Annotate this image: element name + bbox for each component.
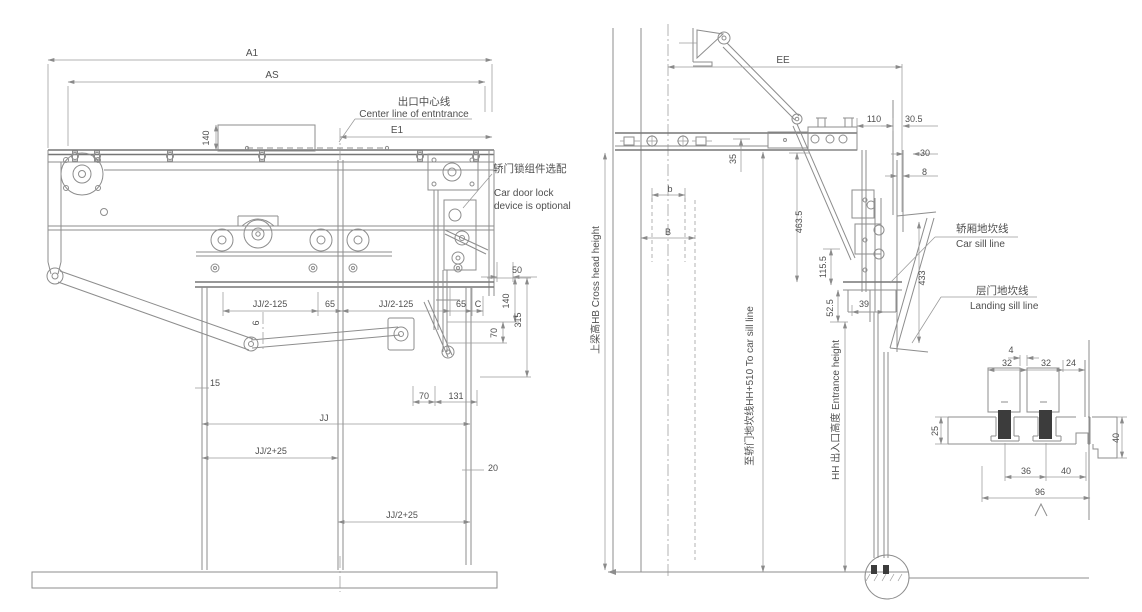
door-hanger-rollers — [211, 216, 369, 251]
dim-e1: E1 — [391, 125, 404, 136]
ground-arrow — [608, 569, 616, 575]
door-drive-arm — [47, 268, 414, 352]
dim-c: C — [475, 299, 482, 309]
label-entrance-height: HH 出入口高度 Entrance height — [829, 340, 842, 480]
dim-25: 25 — [930, 426, 940, 436]
detail-pointer-arrow — [1035, 504, 1047, 516]
dim-433: 433 — [917, 270, 927, 285]
sill-profile — [948, 417, 1117, 458]
dim-40-bottom: 40 — [1061, 466, 1071, 476]
label-landing-sill-zh: 层门地坎线 — [976, 284, 1029, 297]
dim-20: 20 — [488, 463, 498, 473]
side-operator-mechanism — [793, 124, 884, 312]
side-dimensions — [605, 64, 1037, 572]
dim-32-left: 32 — [1002, 358, 1012, 368]
label-crosshead-height: 上梁高HB Cross head height — [589, 226, 602, 354]
label-door-lock-zh: 轿门锁组件选配 — [493, 162, 567, 175]
label-car-sill-en: Car sill line — [956, 239, 1005, 250]
dim-ee: EE — [776, 55, 790, 66]
front-view: A1 AS E1 出口中心线 Center line of entntrance… — [32, 48, 571, 592]
dim-6: 6 — [251, 320, 261, 325]
side-labels: EE 110 30.5 30 8 35 463.5 115.5 52.5 39 … — [589, 55, 1039, 480]
dim-35: 35 — [728, 154, 738, 164]
label-landing-sill-en: Landing sill line — [970, 301, 1039, 312]
label-door-lock-en2: device is optional — [494, 201, 571, 212]
dim-24: 24 — [1066, 358, 1076, 368]
guide-shoe-right — [1039, 410, 1052, 439]
dim-8: 8 — [922, 167, 927, 177]
dim-96: 96 — [1035, 487, 1045, 497]
dim-131: 131 — [448, 391, 463, 401]
dim-4: 4 — [1008, 345, 1013, 355]
floor-base — [32, 572, 497, 588]
side-view: EE 110 30.5 30 8 35 463.5 115.5 52.5 39 … — [589, 24, 1089, 599]
dim-b-cap: B — [665, 227, 671, 237]
dim-36: 36 — [1021, 466, 1031, 476]
dim-jj2-25-left: JJ/2+25 — [255, 446, 287, 456]
dim-32-right: 32 — [1041, 358, 1051, 368]
section-dimensions — [935, 355, 1127, 502]
dim-40-right: 40 — [1111, 433, 1121, 443]
dim-jj2-125-right: JJ/2-125 — [379, 299, 414, 309]
dim-65-right: 65 — [456, 299, 466, 309]
dim-315: 315 — [513, 312, 523, 327]
dim-70-vert: 70 — [489, 328, 499, 338]
dim-65-left: 65 — [325, 299, 335, 309]
dim-110: 110 — [867, 114, 881, 124]
sill-detail-circle — [865, 555, 909, 599]
dim-50: 50 — [512, 265, 522, 275]
label-entrance-center-zh: 出口中心线 — [398, 95, 451, 108]
label-car-sill-zh: 轿厢地坎线 — [956, 222, 1009, 235]
sill-section-detail: 4 32 32 24 25 40 36 40 96 — [930, 345, 1127, 516]
guide-shoe-left — [998, 410, 1011, 439]
section-labels: 4 32 32 24 25 40 36 40 96 — [930, 345, 1121, 497]
elevator-door-operator-drawing: A1 AS E1 出口中心线 Center line of entntrance… — [0, 0, 1142, 612]
dim-b-small: b — [667, 184, 672, 194]
label-to-car-sill: 至轿门地坎线HH+510 To car sill line — [743, 306, 756, 466]
label-door-lock-en1: Car door lock — [494, 188, 554, 199]
door-panel-section-right — [1027, 368, 1059, 412]
track-bolts — [72, 151, 480, 161]
drawing-canvas: A1 AS E1 出口中心线 Center line of entntrance… — [0, 0, 1142, 612]
door-panels — [202, 160, 471, 570]
dim-jj2-25-right: JJ/2+25 — [386, 510, 418, 520]
crosshead-beam — [615, 118, 857, 150]
dim-70-horiz: 70 — [419, 391, 429, 401]
dim-30: 30 — [920, 148, 930, 158]
crosshead-bracket — [218, 125, 315, 151]
dim-15: 15 — [210, 378, 220, 388]
door-panel-section-left — [988, 368, 1020, 412]
front-dimensions — [48, 60, 537, 522]
hanger-bolts — [211, 264, 462, 272]
dim-30-5: 30.5 — [905, 114, 923, 124]
label-entrance-center-en: Center line of entntrance — [359, 109, 469, 120]
dim-a1: A1 — [246, 48, 259, 59]
dim-39: 39 — [859, 299, 869, 309]
dim-140-header: 140 — [201, 130, 211, 145]
dim-52-5: 52.5 — [825, 299, 835, 317]
section-structure — [948, 360, 1117, 516]
dim-as: AS — [265, 70, 279, 81]
car-door-lock-assembly — [424, 154, 488, 358]
dim-jj: JJ — [320, 413, 329, 423]
dim-463-5: 463.5 — [794, 211, 804, 234]
dim-140-right: 140 — [501, 293, 511, 308]
dim-115-5: 115.5 — [818, 256, 828, 278]
dim-jj2-125-left: JJ/2-125 — [253, 299, 288, 309]
suspension-arm — [679, 28, 802, 124]
